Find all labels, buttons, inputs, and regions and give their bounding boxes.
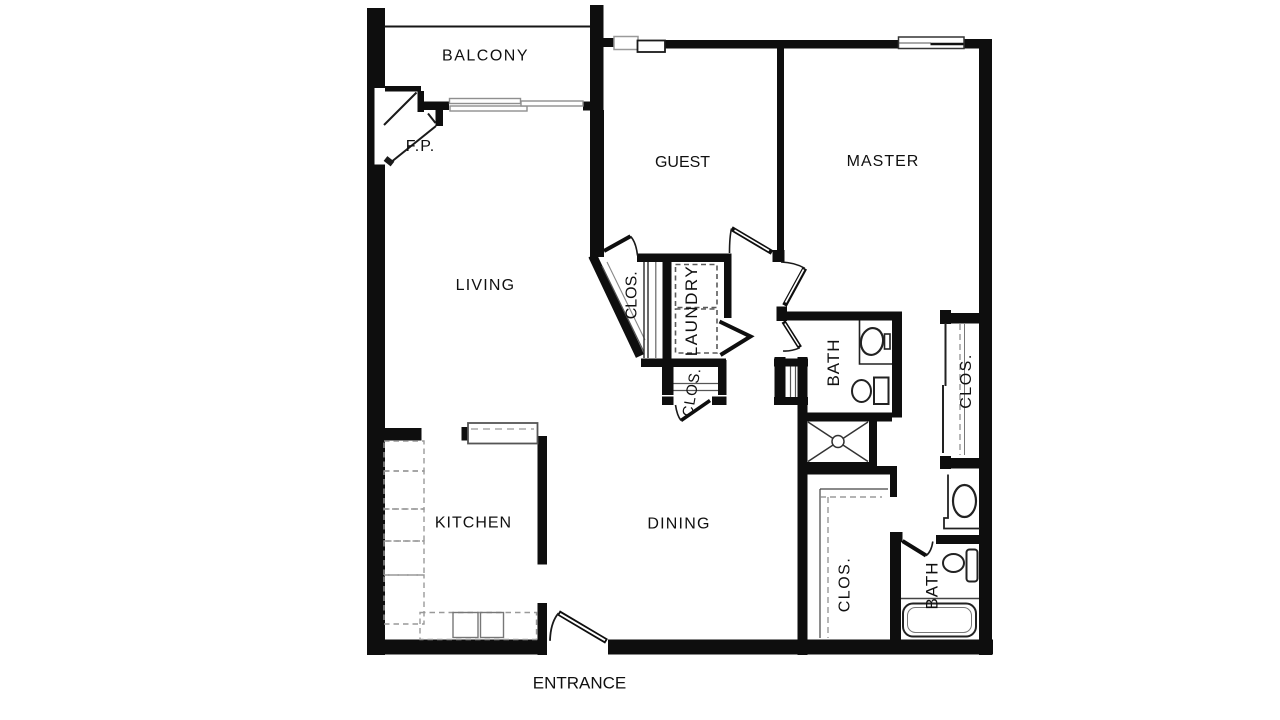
svg-text:CLOS.: CLOS. bbox=[624, 271, 641, 319]
svg-text:GUEST: GUEST bbox=[655, 154, 710, 171]
svg-text:LAUNDRY: LAUNDRY bbox=[682, 265, 701, 356]
svg-text:DINING: DINING bbox=[647, 516, 710, 533]
svg-text:F.P.: F.P. bbox=[406, 138, 436, 155]
svg-text:MASTER: MASTER bbox=[847, 153, 920, 170]
svg-text:BATH: BATH bbox=[824, 338, 843, 386]
svg-text:ENTRANCE: ENTRANCE bbox=[533, 674, 627, 693]
svg-text:BALCONY: BALCONY bbox=[442, 48, 529, 65]
svg-text:CLOS.: CLOS. bbox=[958, 353, 975, 409]
svg-text:CLOS.: CLOS. bbox=[837, 557, 854, 613]
svg-text:BATH: BATH bbox=[923, 561, 942, 609]
svg-text:LIVING: LIVING bbox=[456, 277, 516, 294]
svg-text:KITCHEN: KITCHEN bbox=[435, 515, 512, 532]
